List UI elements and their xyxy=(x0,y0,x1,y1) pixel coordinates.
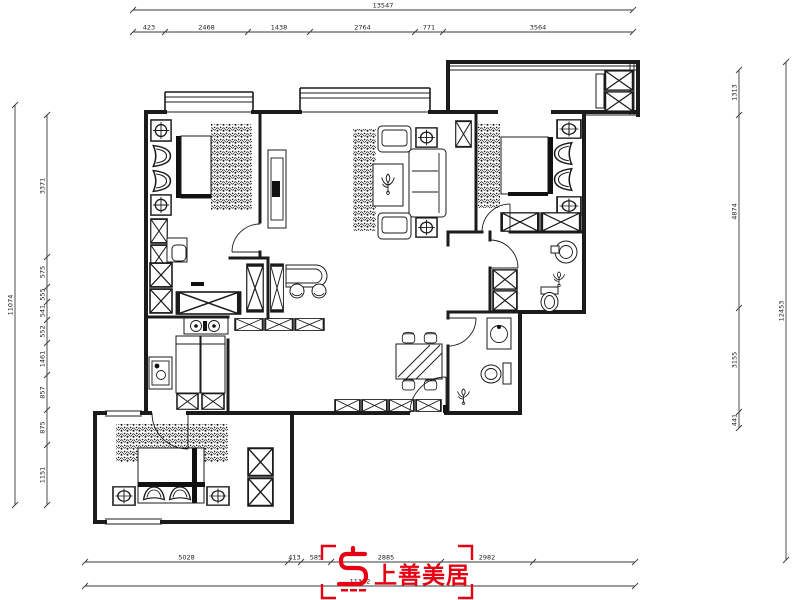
nightstand-lamp-icon xyxy=(151,195,171,215)
plant-icon xyxy=(458,389,470,405)
storage-cabinet xyxy=(493,270,517,289)
hallway-cabinets xyxy=(150,263,327,314)
dimension-label: 875 xyxy=(39,421,47,433)
kitchen-counter xyxy=(201,336,225,393)
floor-plan-page: 1354742324681438276477135645028413585288… xyxy=(0,0,800,600)
dimension-label: 575 xyxy=(39,266,47,278)
logo-caption-marks xyxy=(341,589,366,592)
bar-stool xyxy=(312,284,326,298)
brand-logo: 上善美居 xyxy=(322,546,472,598)
dimension-label: 413 xyxy=(288,554,300,562)
dimension-label: 1313 xyxy=(731,84,739,101)
dining-chair xyxy=(424,332,436,342)
nightstand-lamp-icon xyxy=(207,487,229,505)
bed-mattress xyxy=(181,136,211,198)
storage-cabinet xyxy=(493,291,517,310)
wardrobe-cabinet xyxy=(542,213,581,231)
bedroom-2 xyxy=(478,120,581,232)
plant-hatch-band xyxy=(211,124,252,210)
bed-mattress xyxy=(501,137,548,194)
bathroom-2 xyxy=(448,318,511,405)
bar-stool xyxy=(290,284,304,298)
dimension-label: 3155 xyxy=(731,352,739,369)
dimension-label: 555 xyxy=(39,288,47,300)
kitchen xyxy=(149,318,228,409)
desk-chair xyxy=(172,245,186,261)
plant-icon xyxy=(553,272,564,287)
sink-counter xyxy=(487,318,511,349)
dimension-label: 1438 xyxy=(271,24,288,32)
base-cabinet xyxy=(202,394,224,410)
armchair xyxy=(378,213,411,239)
sideboard-cabinet xyxy=(235,319,263,331)
bed-headboard xyxy=(548,137,553,194)
bay-window-left xyxy=(165,92,253,112)
dimension-label: 2468 xyxy=(198,24,215,32)
nightstand-lamp-icon xyxy=(113,487,135,505)
wardrobe-cabinet xyxy=(248,448,273,476)
bedroom-3 xyxy=(113,413,273,506)
dining-table xyxy=(396,344,442,379)
kitchen-sink xyxy=(149,357,172,389)
window-bedroom3-bottom xyxy=(105,519,162,524)
side-table-lamp-icon xyxy=(416,128,437,147)
dining-chair xyxy=(402,379,414,389)
door-arc xyxy=(490,240,518,268)
dimension-label: 1461 xyxy=(39,351,47,368)
coffee-table xyxy=(373,164,403,206)
pillow-icon xyxy=(555,169,572,191)
pillow-icon xyxy=(153,146,170,167)
shoe-cabinet xyxy=(335,400,360,412)
logo-text: 上善美居 xyxy=(374,562,470,589)
pillow-icon xyxy=(555,143,572,165)
dimension-label: 857 xyxy=(39,386,47,398)
toilet xyxy=(541,287,558,312)
dimension-label: 5028 xyxy=(178,554,195,562)
dimension-label: 3371 xyxy=(39,178,47,195)
dimension-label: 423 xyxy=(143,24,155,32)
bar-counter xyxy=(286,265,327,287)
living-room xyxy=(268,121,471,239)
bay-window-center xyxy=(300,88,430,112)
wardrobe-cabinet xyxy=(151,219,168,243)
dimension-label: 585 xyxy=(310,554,322,562)
kitchen-counter xyxy=(176,336,200,393)
base-cabinet xyxy=(177,394,198,410)
toilet xyxy=(481,363,511,384)
dimension-label: 12453 xyxy=(778,301,786,322)
tv-icon xyxy=(272,181,280,197)
shoe-cabinet xyxy=(416,400,441,412)
side-table-lamp-icon xyxy=(416,218,437,237)
pillow-icon xyxy=(153,171,170,192)
dimension-label: 2764 xyxy=(354,24,371,32)
illegible-small-text xyxy=(191,282,204,286)
dining-chair xyxy=(424,379,436,389)
nightstand-lamp-icon xyxy=(557,120,581,138)
sideboard-cabinet xyxy=(295,319,323,331)
dimension-label: 13547 xyxy=(373,2,394,10)
dimension-label: 4874 xyxy=(731,203,739,220)
dimension-label: 541 xyxy=(39,305,47,317)
dimension-label: 2982 xyxy=(479,554,496,562)
door-arc xyxy=(448,318,476,346)
balcony-cabinet xyxy=(596,71,633,111)
column-shaft xyxy=(456,121,472,147)
shoe-cabinet xyxy=(362,400,387,412)
nightstand-lamp-icon xyxy=(151,120,171,141)
sideboard-cabinet xyxy=(265,319,293,331)
wardrobe-cabinet xyxy=(502,213,539,231)
dining-chair xyxy=(402,332,414,342)
dimension-label: 11074 xyxy=(7,295,15,316)
dimension-label: 3564 xyxy=(530,24,547,32)
window-bedroom3-top xyxy=(105,411,142,416)
plant-hatch-band xyxy=(478,124,500,208)
dimension-label: 552 xyxy=(39,325,47,337)
bathroom-1 xyxy=(490,240,577,312)
bed-headboard xyxy=(176,136,181,198)
dimension-label: 1151 xyxy=(39,467,47,484)
dimension-label: 771 xyxy=(423,24,435,32)
master-bedroom xyxy=(151,120,260,269)
floor-plan-drawing: 1354742324681438276477135645028413585288… xyxy=(0,0,800,600)
dimension-label: 441 xyxy=(731,414,739,426)
dining-area xyxy=(235,319,442,412)
bed-headboard xyxy=(138,482,205,487)
cooktop xyxy=(184,318,228,334)
armchair xyxy=(378,126,411,152)
washbasin xyxy=(551,241,577,263)
door-arc xyxy=(232,224,260,252)
sofa xyxy=(409,149,446,217)
wardrobe-cabinet xyxy=(248,478,273,506)
dimension-label: 2885 xyxy=(378,554,395,562)
